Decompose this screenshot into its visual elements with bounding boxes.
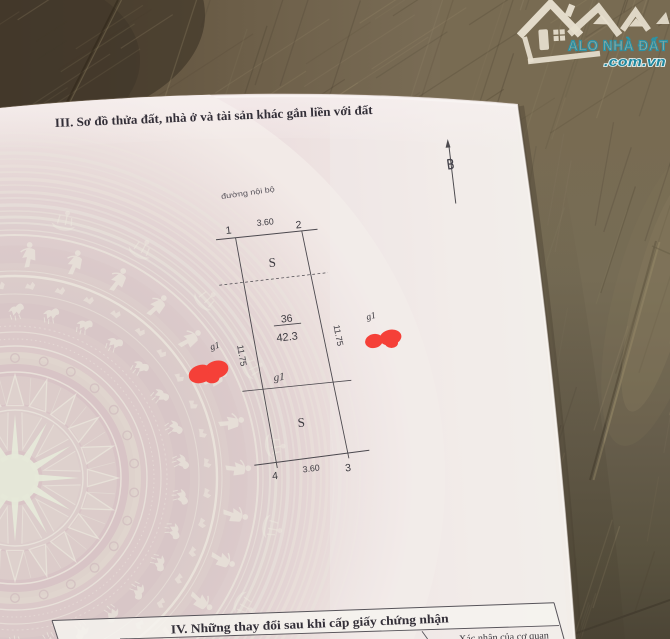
svg-text:.com.vn: .com.vn [604,55,666,69]
svg-text:S: S [268,254,277,270]
svg-text:36: 36 [280,312,293,325]
svg-text:ALO NHÀ ĐẤT: ALO NHÀ ĐẤT [568,38,668,55]
svg-text:3.60: 3.60 [256,216,274,228]
svg-text:42.3: 42.3 [276,330,299,344]
svg-text:3.60: 3.60 [302,462,320,474]
svg-text:g1: g1 [273,371,285,384]
svg-text:S: S [297,414,306,430]
